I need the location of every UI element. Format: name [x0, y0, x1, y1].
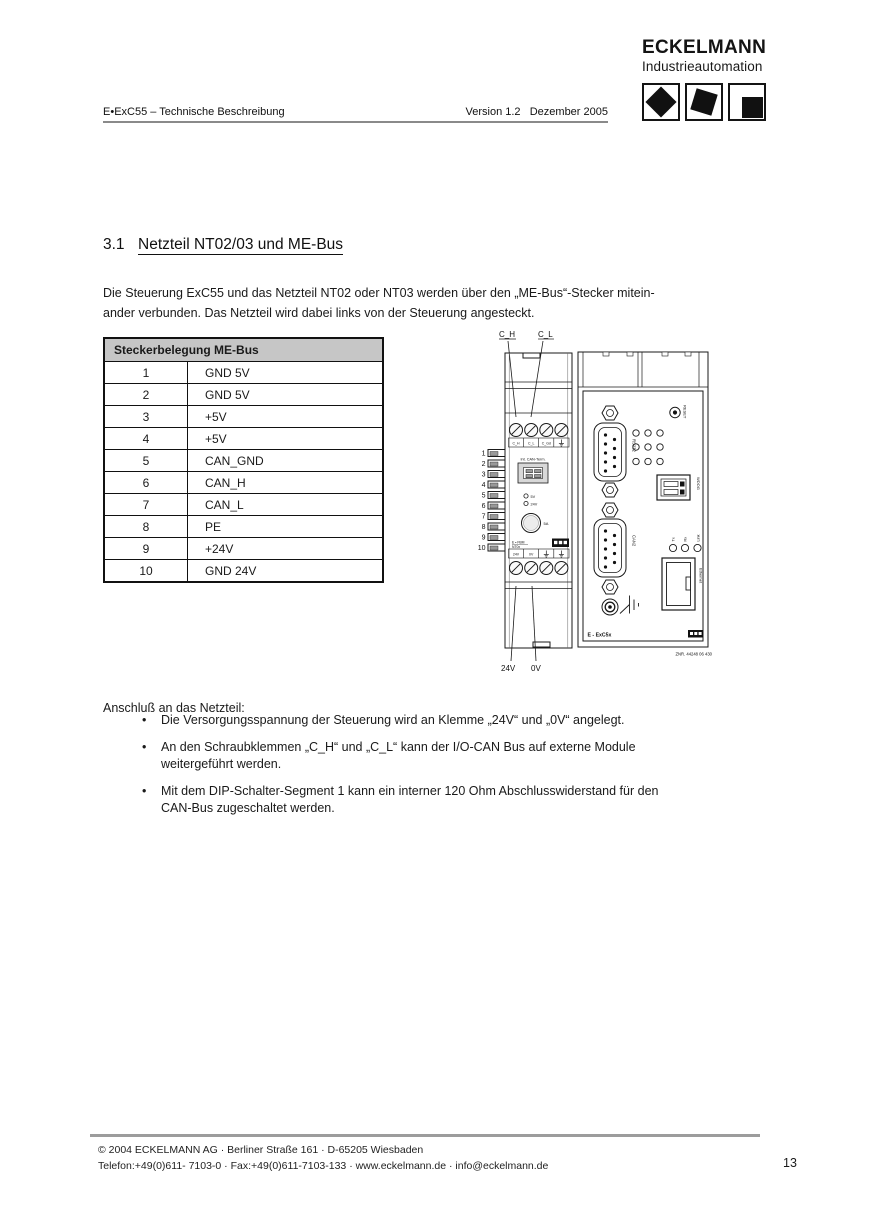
pin-signal: GND 5V — [188, 384, 384, 406]
pin-signal: CAN_L — [188, 494, 384, 516]
logo-squares-icon — [642, 83, 770, 121]
rs232-label: RS232 — [632, 439, 637, 452]
running-header: E•ExC55 – Technische Beschreibung Versio… — [103, 106, 608, 123]
screw-terminals-top — [510, 424, 568, 437]
ethernet-label: Ethernet — [699, 568, 704, 584]
svg-text:C_H: C_H — [512, 442, 519, 446]
can2-label: CAN2 — [632, 535, 637, 547]
reset-label: RESET — [683, 405, 688, 419]
pin-number: 8 — [104, 516, 188, 538]
rs232-connector: RS232 — [594, 406, 637, 497]
svg-text:3: 3 — [482, 472, 486, 479]
logo-square-tilted-icon — [685, 83, 723, 121]
supply-wire-labels: 24V 0V — [501, 664, 541, 673]
table-row: 2GND 5V — [104, 384, 383, 406]
terminal-strip-top: C_H C_L C_Gd — [509, 438, 570, 447]
section-number: 3.1 — [103, 236, 138, 254]
svg-text:9: 9 — [482, 535, 486, 542]
can-term-label: Int. CAN-Term. — [520, 458, 545, 462]
ethernet-leds: Tx Rx Link — [669, 534, 701, 551]
pin-signal: GND 5V — [188, 362, 384, 384]
screw-terminals-bottom — [510, 562, 568, 575]
table-header-row: Steckerbelegung ME-Bus — [104, 338, 383, 362]
pin-number: 3 — [104, 406, 188, 428]
svg-text:6: 6 — [482, 503, 486, 510]
leader-line-cl — [531, 341, 543, 417]
table-row: 6CAN_H — [104, 472, 383, 494]
pin-signal: PE — [188, 516, 384, 538]
header-doc-title: E•ExC55 – Technische Beschreibung — [103, 106, 285, 118]
pin-signal: GND 24V — [188, 560, 384, 583]
pin-signal: +24V — [188, 538, 384, 560]
connection-notes-list: •Die Versorgungsspannung der Steuerung w… — [142, 712, 772, 827]
label-0v: 0V — [531, 664, 541, 673]
can-term-dip-switch — [518, 463, 548, 483]
footer-rule — [90, 1134, 760, 1137]
bullet-icon: • — [142, 739, 161, 774]
section-title: Netzteil NT02/03 und ME-Bus — [138, 236, 343, 255]
table-row: 7CAN_L — [104, 494, 383, 516]
led-24v-label: 24V — [531, 502, 538, 506]
bullet-icon: • — [142, 712, 161, 730]
table-row: 1GND 5V — [104, 362, 383, 384]
list-item: •An den Schraubklemmen „C_H“ und „C_L“ k… — [142, 739, 772, 774]
pin-number: 6 — [104, 472, 188, 494]
footer-contact: Telefon:+49(0)611- 7103-0 · Fax:+49(0)61… — [98, 1159, 548, 1175]
bullet-text: An den Schraubklemmen „C_H“ und „C_L“ ka… — [161, 739, 636, 774]
svg-text:8: 8 — [482, 524, 486, 531]
list-item: •Die Versorgungsspannung der Steuerung w… — [142, 712, 772, 730]
logo-brand: ECKELMANN — [642, 38, 770, 58]
svg-text:5: 5 — [482, 493, 486, 500]
pin-signal: CAN_GND — [188, 450, 384, 472]
mebus-pins: 1 2 3 4 5 6 7 8 9 10 — [478, 450, 505, 553]
can-wire-labels: C_H C_L — [499, 330, 553, 339]
controller-module: RESET — [578, 352, 708, 647]
intro-paragraph: Die Steuerung ExC55 und das Netzteil NT0… — [103, 283, 743, 323]
reset-button: RESET — [670, 405, 688, 419]
bullet-text: Mit dem DIP-Schalter-Segment 1 kann ein … — [161, 783, 658, 818]
logo-square-corner-icon — [728, 83, 766, 121]
list-item: •Mit dem DIP-Schalter-Segment 1 kann ein… — [142, 783, 772, 818]
power-leds: 5V 24V — [524, 494, 538, 506]
table-title: Steckerbelegung ME-Bus — [104, 338, 383, 362]
table-row: 9+24V — [104, 538, 383, 560]
svg-text:1: 1 — [482, 451, 486, 458]
logo-subtitle: Industrieautomation — [642, 59, 770, 74]
pin-signal: +5V — [188, 406, 384, 428]
pin-number: 7 — [104, 494, 188, 516]
ground-icon — [544, 551, 549, 558]
svg-text:C_Gd: C_Gd — [542, 442, 551, 446]
svg-text:10: 10 — [478, 545, 486, 552]
ground-icon — [559, 551, 564, 558]
svg-text:24V: 24V — [513, 553, 520, 557]
table-row: 3+5V — [104, 406, 383, 428]
label-c-h: C_H — [499, 330, 515, 339]
pin-assignment-table: Steckerbelegung ME-Bus 1GND 5V 2GND 5V 3… — [103, 337, 384, 583]
led-5v-label: 5V — [531, 495, 536, 499]
fuse-icon: 5A — [522, 514, 549, 533]
company-logo: ECKELMANN Industrieautomation — [642, 38, 770, 121]
document-page: ECKELMANN Industrieautomation E•ExC55 – … — [0, 0, 870, 1230]
mini-logo-icon — [688, 630, 703, 638]
ethernet-jack: Ethernet — [662, 558, 704, 610]
svg-text:2: 2 — [482, 461, 486, 468]
device-diagram: C_H C_L 1 2 3 4 5 6 7 8 9 10 — [470, 325, 720, 675]
pin-number: 1 — [104, 362, 188, 384]
bullet-text: Die Versorgungsspannung der Steuerung wi… — [161, 712, 624, 730]
bullet-icon: • — [142, 783, 161, 818]
ground-stud-icon — [602, 599, 618, 615]
pin-number: 4 — [104, 428, 188, 450]
device-name-label: E - ExC5x — [588, 633, 612, 639]
module-name-line2: NT0x — [512, 545, 520, 549]
pin-number: 9 — [104, 538, 188, 560]
pin-signal: CAN_H — [188, 472, 384, 494]
table-row: 10GND 24V — [104, 560, 383, 583]
svg-text:C_L: C_L — [528, 442, 534, 446]
part-number-label: ZNR. 44248 06 430 — [675, 652, 712, 657]
footer-address: © 2004 ECKELMANN AG · Berliner Straße 16… — [98, 1143, 548, 1159]
earth-symbol-icon — [620, 596, 639, 614]
table-row: 4+5V — [104, 428, 383, 450]
label-c-l: C_L — [538, 330, 553, 339]
pin-signal: +5V — [188, 428, 384, 450]
wdog-label: WDOG — [696, 477, 701, 490]
svg-text:0V: 0V — [529, 553, 534, 557]
terminal-strip-bottom: 24V 0V — [509, 549, 570, 558]
logo-square-diamond-icon — [642, 83, 680, 121]
fuse-rating-label: 5A — [544, 521, 549, 526]
pin-number: 5 — [104, 450, 188, 472]
module-name-line1: E • FBM — [512, 541, 525, 545]
can2-connector: CAN2 — [594, 503, 637, 594]
svg-text:7: 7 — [482, 514, 486, 521]
table-row: 5CAN_GND — [104, 450, 383, 472]
leader-line-0v — [532, 586, 536, 661]
tx-label: Tx — [672, 537, 676, 541]
rx-label: Rx — [684, 537, 688, 542]
table-row: 8PE — [104, 516, 383, 538]
link-label: Link — [697, 534, 701, 541]
mini-logo-icon — [552, 539, 569, 548]
pin-number: 10 — [104, 560, 188, 583]
footer: © 2004 ECKELMANN AG · Berliner Straße 16… — [98, 1143, 548, 1174]
pin-number: 2 — [104, 384, 188, 406]
label-24v: 24V — [501, 664, 516, 673]
ground-icon — [559, 440, 564, 447]
header-version: Version 1.2 Dezember 2005 — [466, 106, 608, 118]
section-heading: 3.1Netzteil NT02/03 und ME-Bus — [103, 236, 343, 254]
wdog-dip-switch: WDOG — [657, 475, 701, 500]
leader-line-24v — [511, 586, 516, 661]
page-number: 13 — [783, 1156, 797, 1170]
svg-text:4: 4 — [482, 482, 486, 489]
